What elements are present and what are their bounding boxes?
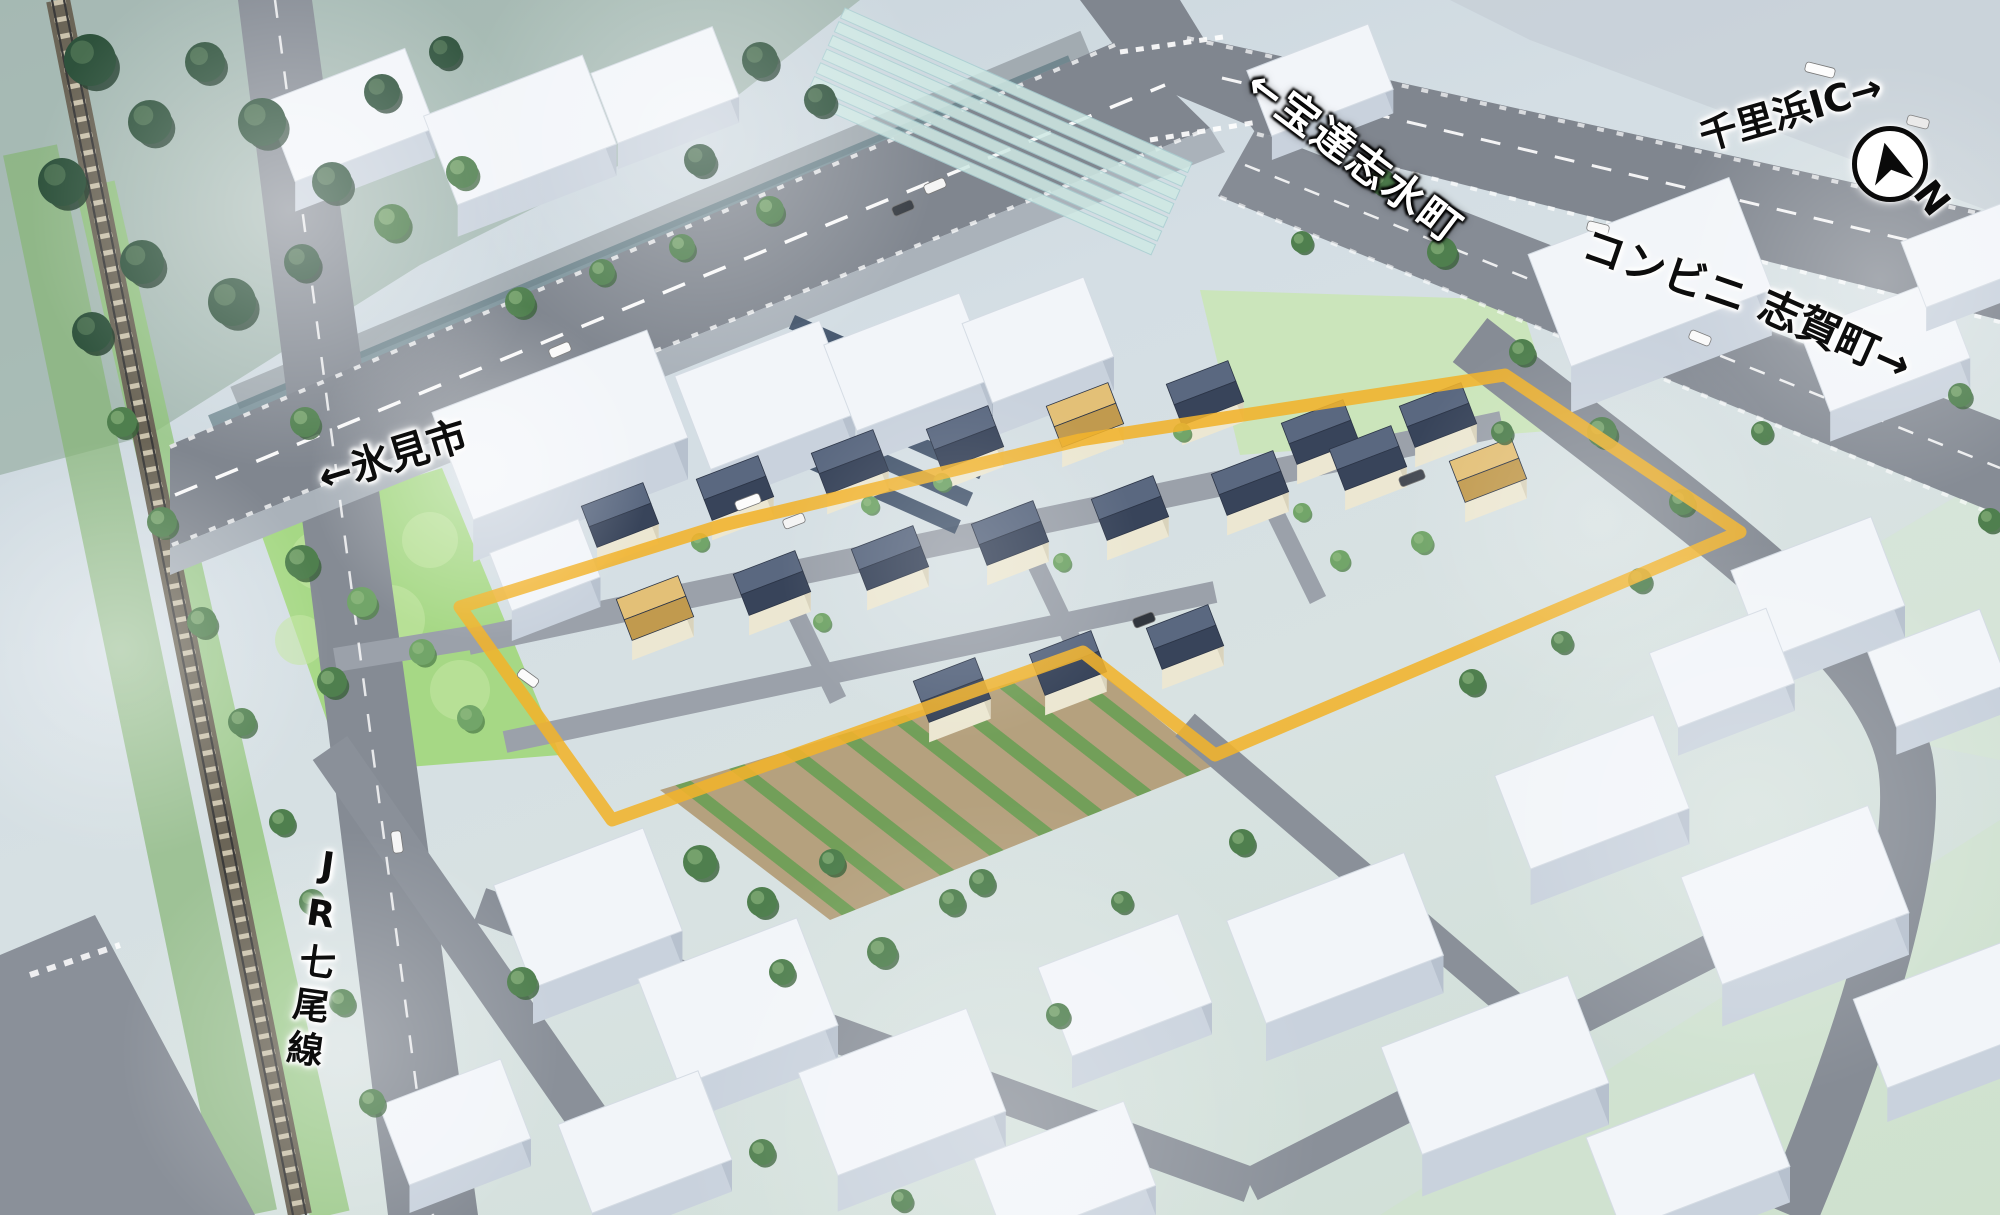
north-arrow-icon [1859,133,1921,195]
aerial-site-rendering: ←宝達志水町 千里浜IC→ コンビニ 志賀町→ ←氷見市 JR七尾線 N [0,0,2000,1215]
compass-north-indicator: N [1852,126,1928,202]
